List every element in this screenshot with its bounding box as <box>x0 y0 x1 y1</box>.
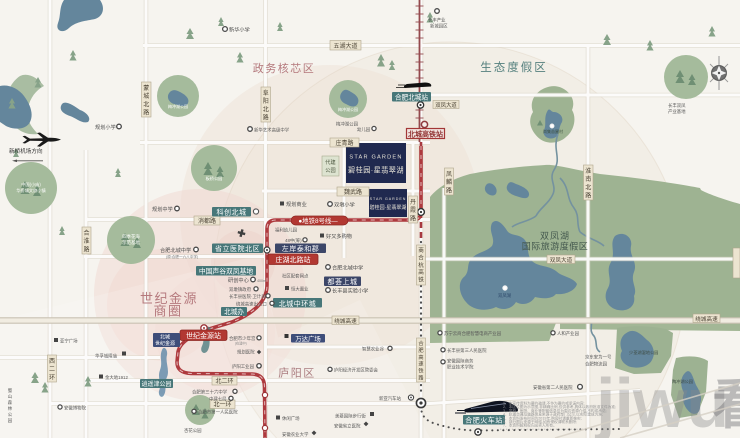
svg-text:绕城高速出入口: 绕城高速出入口 <box>236 301 267 308</box>
svg-text:魏武路: 魏武路 <box>344 188 362 196</box>
svg-text:绕城高速: 绕城高速 <box>334 317 357 325</box>
svg-text:48中(筹): 48中(筹) <box>285 237 302 244</box>
svg-text:规划医院: 规划医院 <box>237 349 255 356</box>
svg-text:商圈: 商圈 <box>153 304 182 319</box>
svg-text:新桥机场方向: 新桥机场方向 <box>9 147 43 155</box>
svg-text:双凤大道: 双凤大道 <box>550 256 573 264</box>
svg-text:新城园区: 新城园区 <box>430 23 448 30</box>
svg-text:双墩镇政府: 双墩镇政府 <box>229 286 252 293</box>
svg-text:庐阳工业园: 庐阳工业园 <box>232 363 255 370</box>
svg-text:安徽国际商务: 安徽国际商务 <box>447 358 474 365</box>
svg-text:休闲广场: 休闲广场 <box>282 415 300 422</box>
svg-text:新亚汽车站: 新亚汽车站 <box>379 395 402 402</box>
svg-text:世纪金源: 世纪金源 <box>155 340 175 347</box>
svg-text:●地铁8号线—: ●地铁8号线— <box>298 216 338 225</box>
svg-text:双凤湖: 双凤湖 <box>498 292 512 299</box>
svg-text:STAR GARDEN: STAR GARDEN <box>349 155 402 161</box>
svg-text:智慧农业谷: 智慧农业谷 <box>362 346 385 353</box>
svg-text:安徽省立医院: 安徽省立医院 <box>334 423 361 430</box>
svg-text:绕城高速: 绕城高速 <box>695 315 718 323</box>
svg-text:合肥北城中学: 合肥北城中学 <box>160 246 191 254</box>
svg-text:(在建中): (在建中) <box>235 341 247 346</box>
svg-text:长丰双凤: 长丰双凤 <box>668 102 686 109</box>
svg-text:梅冲湖公园: 梅冲湖公园 <box>168 103 188 109</box>
svg-text:消都路: 消都路 <box>198 217 216 225</box>
svg-text:(原:合肥一六八中学): (原:合肥一六八中学) <box>166 254 198 259</box>
svg-text:省立医院北区: 省立医院北区 <box>215 244 260 253</box>
svg-text:规划中学: 规划中学 <box>152 205 173 213</box>
svg-text:北城: 北城 <box>160 334 170 341</box>
svg-text:双凤湖: 双凤湖 <box>540 231 570 241</box>
svg-text:合淮路: 合淮路 <box>83 229 89 253</box>
svg-text:碧桂园·星翡翠湖: 碧桂园·星翡翠湖 <box>370 204 407 211</box>
svg-text:中国声谷双凤基地: 中国声谷双凤基地 <box>199 267 254 276</box>
svg-text:产业基地: 产业基地 <box>668 108 686 115</box>
svg-text:长丰县实验小学: 长丰县实验小学 <box>332 287 368 295</box>
svg-text:恒大置业: 恒大置业 <box>291 286 309 293</box>
svg-text:商合杭高铁: 商合杭高铁 <box>418 246 424 284</box>
svg-text:少荃湖湿地公园: 少荃湖湿地公园 <box>629 349 658 356</box>
svg-text:社区配套网点: 社区配套网点 <box>282 273 309 280</box>
svg-text:金大地1912: 金大地1912 <box>105 374 128 381</box>
svg-text:都荟上城: 都荟上城 <box>328 277 358 286</box>
svg-text:合肥北城站: 合肥北城站 <box>395 92 428 101</box>
svg-text:长丰县医院·卫计局: 长丰县医院·卫计局 <box>229 293 266 300</box>
svg-text:杏花公园: 杏花公园 <box>184 427 202 434</box>
svg-text:凤麟路: 凤麟路 <box>446 171 452 194</box>
svg-text:双墩小学: 双墩小学 <box>334 201 355 209</box>
svg-text:北二环: 北二环 <box>215 377 233 385</box>
svg-text:美菱国际步行街: 美菱国际步行街 <box>335 413 366 420</box>
svg-text:丹霞路: 丹霞路 <box>410 199 416 222</box>
svg-text:苏宁云商合肥智慧电商产业园: 苏宁云商合肥智慧电商产业园 <box>444 330 502 337</box>
svg-text:国际旅游度假区: 国际旅游度假区 <box>522 241 589 252</box>
svg-text:北城办: 北城办 <box>224 307 244 316</box>
svg-text:梅冲湖公园: 梅冲湖公园 <box>338 106 358 112</box>
svg-text:四季花海: 四季花海 <box>122 233 140 240</box>
svg-text:职业技术学院: 职业技术学院 <box>447 364 474 371</box>
svg-text:华侨城文旅小镇: 华侨城文旅小镇 <box>16 187 45 194</box>
svg-text:400m: 400m <box>257 279 266 283</box>
svg-text:五湖大道: 五湖大道 <box>333 42 357 50</box>
svg-text:代建: 代建 <box>325 158 335 166</box>
svg-text:合肥火车站: 合肥火车站 <box>465 416 503 425</box>
svg-text:庐阳区: 庐阳区 <box>278 366 316 380</box>
svg-text:中国(小庙): 中国(小庙) <box>21 181 41 188</box>
svg-text:亚宁广场: 亚宁广场 <box>60 338 78 345</box>
svg-text:新华小学: 新华小学 <box>229 26 250 34</box>
svg-text:华孚城隍庙: 华孚城隍庙 <box>95 353 118 360</box>
svg-text:世纪金源站: 世纪金源站 <box>186 331 221 340</box>
svg-text:北城中环城: 北城中环城 <box>279 299 317 308</box>
svg-text:规划商业: 规划商业 <box>286 200 307 208</box>
svg-text:京东安为一号: 京东安为一号 <box>585 354 612 361</box>
svg-text:蜀山森林公园: 蜀山森林公园 <box>8 388 13 424</box>
svg-text:公园: 公园 <box>325 167 335 174</box>
svg-text:长丰产业: 长丰产业 <box>428 17 446 24</box>
svg-text:示范基地: 示范基地 <box>122 239 140 246</box>
svg-text:好又多购物: 好又多购物 <box>326 232 352 240</box>
svg-text:庐阳经济开发区管委会: 庐阳经济开发区管委会 <box>334 367 379 374</box>
svg-text:北一环: 北一环 <box>213 401 231 409</box>
svg-text:生态度假区: 生态度假区 <box>480 60 548 74</box>
svg-text:合肥北城中学: 合肥北城中学 <box>332 264 363 272</box>
svg-text:岗集苗圃村: 岗集苗圃村 <box>543 128 563 134</box>
svg-text:安徽博物院: 安徽博物院 <box>64 405 87 412</box>
svg-text:科创北城: 科创北城 <box>217 208 247 217</box>
svg-text:合肥市第一人民医院: 合肥市第一人民医院 <box>198 409 238 416</box>
svg-text:北城高铁站: 北城高铁站 <box>408 130 443 139</box>
svg-text:庄湖北路站: 庄湖北路站 <box>276 255 311 264</box>
svg-text:安徽省第二人民医院: 安徽省第二人民医院 <box>533 384 573 391</box>
svg-text:万达广场: 万达广场 <box>295 334 321 343</box>
svg-text:STAR GARDEN: STAR GARDEN <box>370 197 407 201</box>
svg-text:人和产业园: 人和产业园 <box>557 330 580 337</box>
svg-text:双凤大道: 双凤大道 <box>435 101 457 109</box>
svg-text:规划小学: 规划小学 <box>95 123 116 131</box>
svg-text:福利幼儿园: 福利幼儿园 <box>275 227 298 234</box>
svg-text:政务核芯区: 政务核芯区 <box>253 61 316 75</box>
svg-text:梅冲湖公园: 梅冲湖公园 <box>336 121 359 128</box>
svg-text:合肥第三十六中学: 合肥第三十六中学 <box>192 389 228 396</box>
svg-text:西二环: 西二环 <box>49 358 55 381</box>
svg-text:安徽农业大学: 安徽农业大学 <box>282 431 309 438</box>
svg-text:庄青路: 庄青路 <box>335 139 353 147</box>
svg-text:7、本资料解释权归出卖人所有。: 7、本资料解释权归出卖人所有。 <box>503 423 557 428</box>
svg-text:中建七局: 中建七局 <box>209 396 227 403</box>
svg-text:逍遥津公园: 逍遥津公园 <box>141 380 171 388</box>
svg-text:研创中心: 研创中心 <box>228 276 249 284</box>
svg-text:合肥高速铁路: 合肥高速铁路 <box>418 339 424 382</box>
svg-text:板桥公园: 板桥公园 <box>206 175 223 182</box>
svg-text:幼儿园: 幼儿园 <box>357 126 371 133</box>
svg-text:左岸泰和郡: 左岸泰和郡 <box>282 244 320 253</box>
svg-text:碧桂园·星翡翠湖: 碧桂园·星翡翠湖 <box>348 166 404 175</box>
svg-text:新华艺术高级中学: 新华艺术高级中学 <box>254 127 290 134</box>
svg-text:长丰县第三人民医院: 长丰县第三人民医院 <box>447 347 487 354</box>
